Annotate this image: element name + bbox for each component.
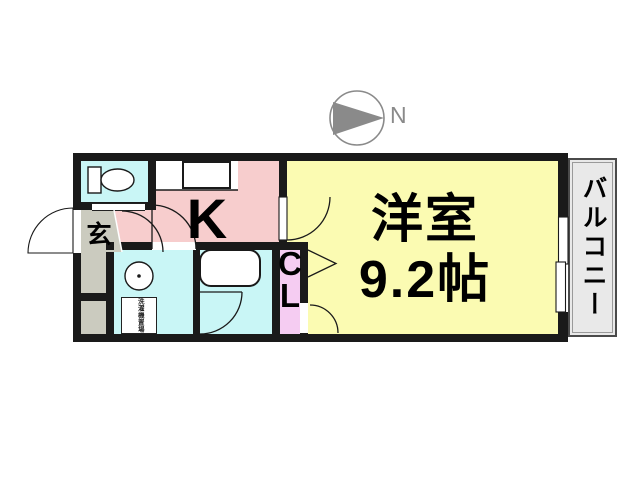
compass-north-label: N xyxy=(390,102,422,129)
entrance-label: 玄 xyxy=(84,222,114,248)
wall-left-upper xyxy=(73,153,81,208)
wall-right-lower xyxy=(558,312,568,342)
wall-kitchen-room-upper xyxy=(279,153,287,197)
wall-right-upper xyxy=(558,153,568,217)
toilet-door xyxy=(92,203,145,211)
toilet-area xyxy=(81,161,148,202)
kitchen-label: K xyxy=(179,190,235,248)
wall-entrance-step xyxy=(73,293,114,301)
washing-machine-label: 洗濯機置場 xyxy=(136,298,143,333)
floor-plan: バルコニー 洗濯機置場 xyxy=(0,0,640,480)
wall-wash-bath xyxy=(193,250,200,342)
compass-needle-icon xyxy=(333,102,384,135)
closet-label-l: L xyxy=(277,280,303,312)
bathroom-area xyxy=(200,250,272,334)
closet-label-c: C xyxy=(277,248,303,280)
entrance-door-arc xyxy=(28,208,73,253)
washing-machine-box: 洗濯機置場 xyxy=(121,297,157,334)
compass-circle xyxy=(330,91,384,145)
wall-bottom xyxy=(73,334,568,342)
window-panel-1 xyxy=(559,217,569,264)
balcony-inner-rail: バルコニー xyxy=(572,162,613,333)
kitchen-counter xyxy=(156,161,238,190)
balcony-area: バルコニー xyxy=(568,158,617,337)
room-door-leaf xyxy=(279,197,287,240)
main-room-name: 洋室 xyxy=(300,190,550,250)
main-room-label: 洋室 9.2帖 xyxy=(300,190,550,310)
main-room-size: 9.2帖 xyxy=(300,250,550,310)
balcony-label: バルコニー xyxy=(580,175,605,320)
closet-label: C L xyxy=(277,248,303,312)
